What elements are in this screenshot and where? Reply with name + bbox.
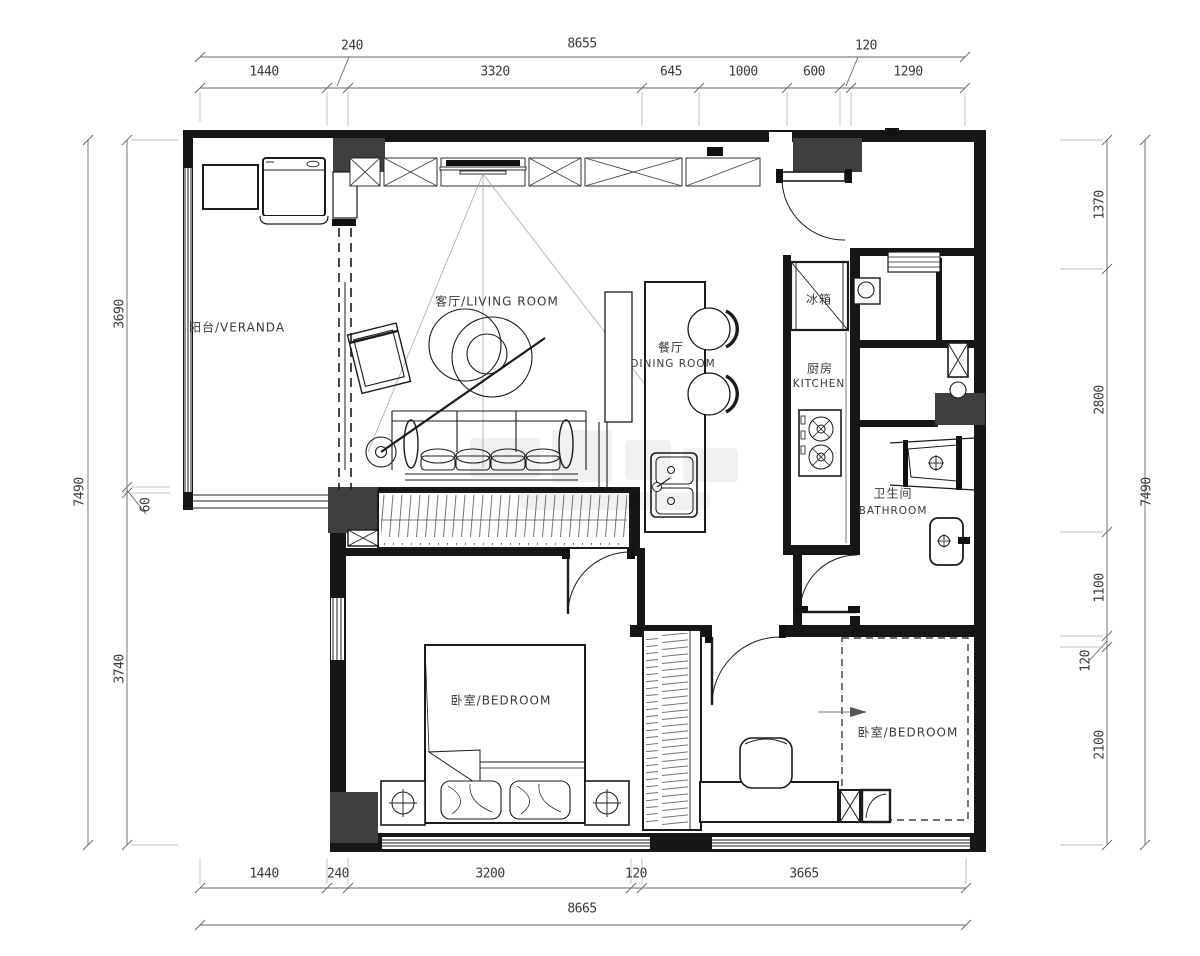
- dim-right-120: 120: [1079, 650, 1094, 672]
- sideboard: [605, 292, 632, 422]
- dim-bottom-120: 120: [625, 867, 647, 882]
- dim-top-1290: 1290: [893, 65, 922, 80]
- bathroom-door: [796, 555, 860, 613]
- nightstand: [381, 781, 425, 825]
- dim-top-1000: 1000: [728, 65, 757, 80]
- tv-cabinet-row: [350, 147, 760, 186]
- shower-toilet: [890, 436, 975, 490]
- dim-bottom-overall: 8665: [567, 902, 596, 917]
- dining-chair: [688, 373, 730, 415]
- dim-left-3740: 3740: [113, 654, 128, 683]
- dim-top-240: 240: [341, 39, 363, 54]
- dim-left-60: 60: [139, 498, 154, 513]
- dim-left-3690: 3690: [113, 299, 128, 328]
- column-x-box: [840, 790, 860, 822]
- utility-column-box: [948, 343, 968, 398]
- dim-bottom-3665: 3665: [789, 867, 818, 882]
- bathroom-sink: [930, 518, 970, 565]
- rug-circle: [429, 309, 501, 381]
- dim-right-overall: 7490: [1140, 477, 1155, 506]
- label-veranda: 阳台/VERANDA: [189, 319, 285, 336]
- rug-circle: [452, 317, 532, 397]
- dim-right-2800: 2800: [1093, 385, 1108, 414]
- pillow: [510, 781, 570, 819]
- pillow: [441, 781, 501, 819]
- bedroom1-door: [562, 546, 635, 614]
- floor-plan-page: 8655 1440 240 3320 645 1000 600 120 1290…: [0, 0, 1200, 956]
- label-dining-en: DINING ROOM: [630, 358, 715, 370]
- entry-utility: [854, 252, 968, 398]
- label-fridge: 冰箱: [806, 291, 832, 308]
- dim-top-645: 645: [660, 65, 682, 80]
- watermark-blob: [683, 448, 738, 482]
- veranda-sliding-door: [332, 172, 357, 490]
- closet-end-box: [348, 530, 378, 546]
- watermark-blob: [552, 430, 612, 482]
- label-kitchen-cn: 厨房: [807, 360, 833, 377]
- watermark-blob: [470, 438, 540, 478]
- wardrobe: [643, 630, 701, 830]
- stove: [799, 410, 841, 476]
- washing-machine: [260, 158, 328, 224]
- dim-right-2100: 2100: [1093, 730, 1108, 759]
- dim-top-600: 600: [803, 65, 825, 80]
- doorbell-icon: [707, 147, 723, 156]
- dining-chair: [688, 308, 730, 350]
- dim-top-3320: 3320: [480, 65, 509, 80]
- label-living-room: 客厅/LIVING ROOM: [435, 293, 559, 310]
- shoe-niche: [888, 252, 940, 272]
- dim-bottom-3200: 3200: [475, 867, 504, 882]
- dim-right-1370: 1370: [1093, 190, 1108, 219]
- bedside-cabinet: [862, 790, 890, 822]
- dim-right-1100: 1100: [1093, 573, 1108, 602]
- armchair: [348, 323, 411, 393]
- dim-top-1440: 1440: [249, 65, 278, 80]
- watermark-blob: [520, 492, 710, 510]
- label-bathroom-en: BATHROOM: [859, 505, 928, 517]
- label-kitchen-en: KITCHEN: [793, 378, 846, 390]
- arc-lamp-rod: [381, 338, 545, 452]
- watermark-blob: [625, 440, 671, 480]
- dim-bottom-1440: 1440: [249, 867, 278, 882]
- label-bedroom-right: 卧室/BEDROOM: [858, 724, 959, 741]
- dim-top-120: 120: [855, 39, 877, 54]
- dim-left-overall: 7490: [73, 477, 88, 506]
- water-heater: [854, 278, 880, 304]
- veranda-appliances: [203, 158, 328, 224]
- label-bedroom-left: 卧室/BEDROOM: [451, 692, 552, 709]
- desk-chair: [740, 738, 792, 788]
- bedroom1-furniture: [381, 630, 701, 830]
- nightstand: [585, 781, 629, 825]
- label-dining-cn: 餐厅: [658, 339, 684, 356]
- label-bathroom-cn: 卫生间: [873, 485, 912, 502]
- cabinet: [203, 165, 258, 209]
- dim-top-overall: 8655: [567, 37, 596, 52]
- dim-bottom-240: 240: [327, 867, 349, 882]
